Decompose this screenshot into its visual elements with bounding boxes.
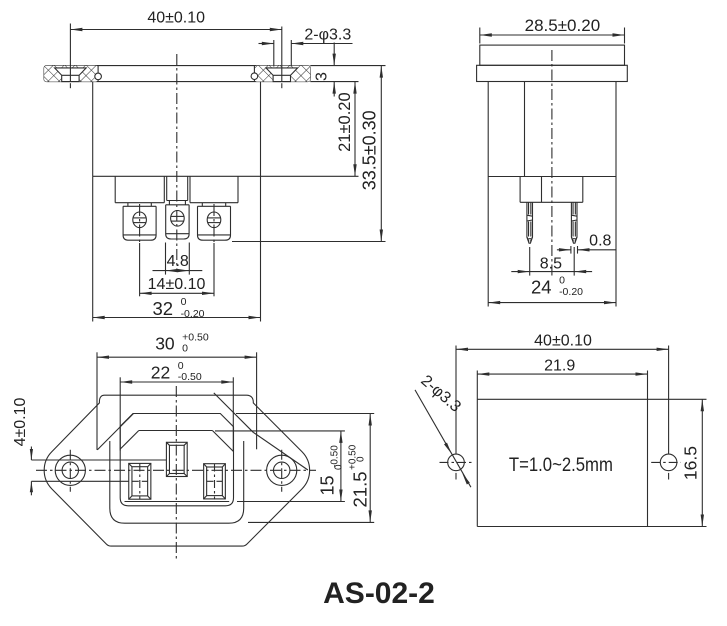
svg-text:0: 0	[182, 342, 188, 354]
svg-text:16.5: 16.5	[681, 446, 701, 480]
svg-text:8.5: 8.5	[540, 256, 562, 273]
svg-text:22: 22	[151, 362, 170, 382]
svg-text:21±0.20: 21±0.20	[336, 92, 354, 152]
svg-text:14±0.10: 14±0.10	[148, 276, 206, 293]
svg-text:32: 32	[153, 298, 174, 319]
svg-text:0: 0	[178, 360, 184, 372]
svg-text:4.8: 4.8	[167, 253, 189, 270]
svg-text:2-φ3.3: 2-φ3.3	[304, 26, 351, 43]
svg-text:4±0.10: 4±0.10	[12, 397, 29, 446]
svg-text:33.5±0.30: 33.5±0.30	[359, 110, 379, 190]
svg-text:30: 30	[155, 334, 175, 354]
svg-text:0: 0	[356, 456, 367, 462]
svg-text:AS-02-2: AS-02-2	[323, 577, 435, 610]
svg-text:+0.50: +0.50	[182, 331, 209, 343]
svg-text:21.9: 21.9	[544, 358, 575, 375]
svg-text:40±0.10: 40±0.10	[147, 10, 205, 27]
svg-text:-0.20: -0.20	[559, 286, 583, 298]
svg-text:40±0.10: 40±0.10	[534, 333, 592, 350]
svg-text:-0.20: -0.20	[181, 308, 205, 320]
svg-text:0: 0	[181, 296, 187, 308]
svg-text:28.5±0.20: 28.5±0.20	[525, 16, 601, 35]
svg-text:15: 15	[318, 475, 338, 495]
svg-text:T=1.0~2.5mm: T=1.0~2.5mm	[509, 454, 613, 475]
svg-text:-0.50: -0.50	[178, 371, 202, 383]
svg-text:0.8: 0.8	[589, 233, 611, 250]
svg-text:-0.50: -0.50	[330, 445, 341, 468]
svg-text:24: 24	[531, 276, 552, 297]
svg-text:21.5: 21.5	[350, 471, 371, 507]
svg-text:3: 3	[314, 72, 331, 81]
svg-text:0: 0	[559, 274, 565, 286]
